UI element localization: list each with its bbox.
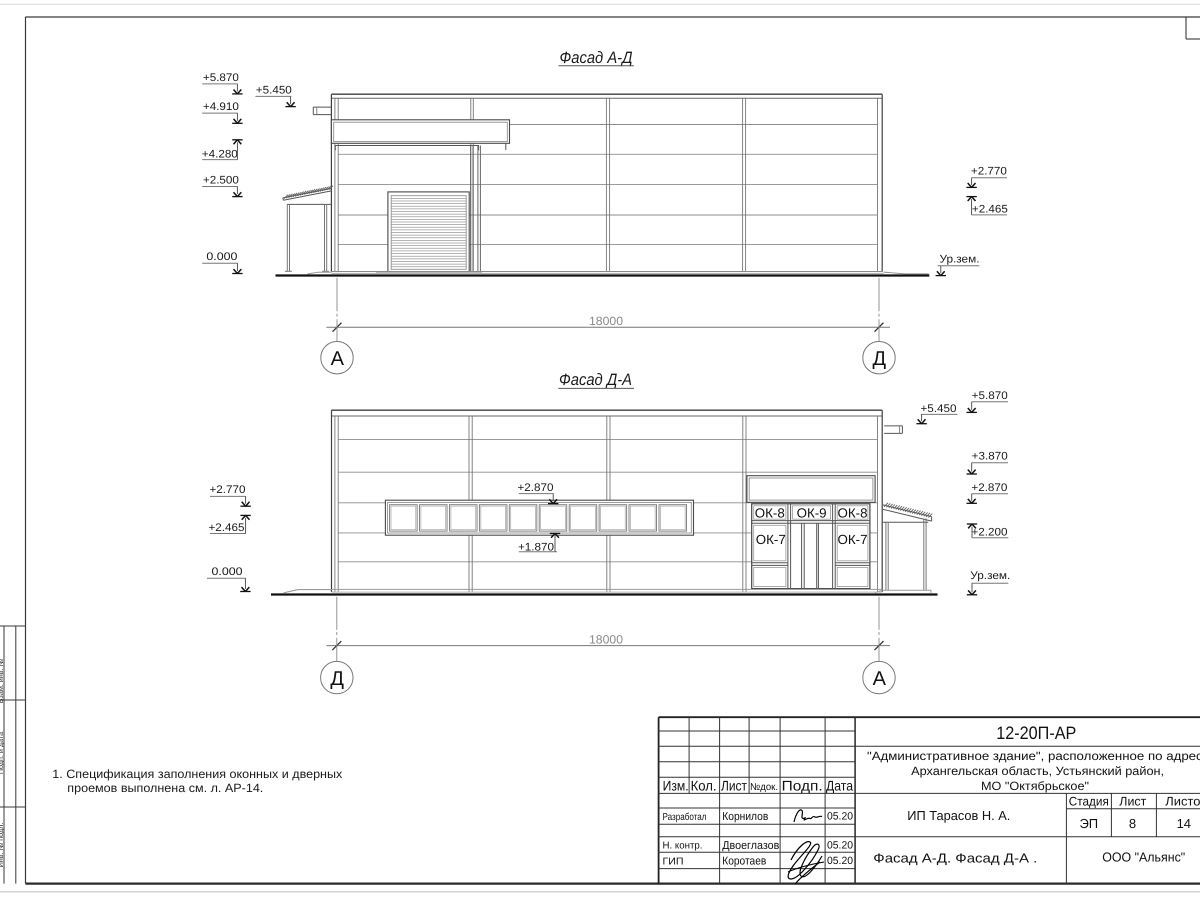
svg-text:Фасад А-Д: Фасад А-Д: [560, 49, 633, 67]
svg-text:№док.: №док.: [750, 782, 778, 793]
svg-text:Фасад А-Д. Фасад Д-А .: Фасад А-Д. Фасад Д-А .: [873, 851, 1037, 866]
svg-text:А: А: [873, 668, 887, 690]
svg-text:ОК-8: ОК-8: [755, 506, 785, 521]
svg-text:Двоеглазов: Двоеглазов: [722, 840, 779, 852]
svg-text:+4.280: +4.280: [202, 148, 238, 160]
svg-text:"Административное здание", рас: "Административное здание", расположенное…: [867, 749, 1200, 763]
svg-text:Д: Д: [330, 668, 344, 690]
svg-text:05.20: 05.20: [827, 811, 853, 823]
svg-text:+2.770: +2.770: [971, 166, 1007, 178]
svg-text:МО "Октябрьское": МО "Октябрьское": [981, 779, 1089, 793]
svg-text:+5.870: +5.870: [203, 72, 239, 84]
svg-text:+2.465: +2.465: [972, 204, 1008, 216]
svg-text:+4.910: +4.910: [203, 101, 239, 113]
svg-text:ЭП: ЭП: [1079, 816, 1098, 831]
svg-text:Лист: Лист: [721, 778, 748, 794]
svg-text:+2.200: +2.200: [972, 527, 1008, 539]
svg-text:Инв. № подл.: Инв. № подл.: [0, 823, 5, 868]
svg-text:Подп. и дата: Подп. и дата: [0, 732, 5, 774]
svg-text:Ур.зем.: Ур.зем.: [940, 254, 980, 266]
svg-text:Изм.: Изм.: [663, 778, 689, 794]
svg-text:+2.870: +2.870: [971, 482, 1007, 494]
svg-text:Лист: Лист: [1119, 794, 1146, 808]
svg-text:+2.770: +2.770: [210, 484, 246, 496]
svg-text:Кол.: Кол.: [691, 778, 717, 794]
svg-text:+5.870: +5.870: [972, 390, 1008, 402]
svg-text:05.20: 05.20: [827, 839, 853, 851]
svg-text:Стадия: Стадия: [1069, 794, 1109, 808]
svg-text:+3.870: +3.870: [972, 450, 1008, 462]
svg-text:ОК-9: ОК-9: [797, 506, 827, 521]
svg-text:А: А: [331, 348, 345, 370]
svg-text:Подп.: Подп.: [782, 778, 823, 794]
svg-text:0.000: 0.000: [212, 566, 243, 578]
svg-text:0.000: 0.000: [206, 251, 237, 263]
svg-text:Фасад Д-А: Фасад Д-А: [559, 371, 632, 389]
svg-text:18000: 18000: [589, 314, 623, 328]
svg-text:Ур.зем.: Ур.зем.: [970, 570, 1010, 582]
svg-text:Коротаев: Коротаев: [722, 856, 766, 868]
svg-text:+5.450: +5.450: [256, 84, 292, 96]
svg-text:12-20П-АР: 12-20П-АР: [996, 723, 1076, 743]
svg-text:8: 8: [1129, 816, 1136, 831]
svg-text:ОК-7: ОК-7: [756, 532, 786, 547]
svg-text:18000: 18000: [589, 632, 623, 646]
svg-text:ООО "Альянс": ООО "Альянс": [1102, 850, 1185, 865]
svg-text:+5.450: +5.450: [921, 403, 957, 415]
svg-text:05.20: 05.20: [827, 855, 853, 867]
svg-text:Архангельская область, Устьянс: Архангельская область, Устьянский район,: [911, 764, 1164, 778]
svg-text:Н. контр.: Н. контр.: [663, 841, 703, 852]
svg-text:Д: Д: [873, 348, 887, 370]
svg-text:Взам. инв. №: Взам. инв. №: [0, 658, 5, 703]
svg-text:ОК-7: ОК-7: [838, 532, 868, 547]
svg-text:+2.500: +2.500: [203, 174, 239, 186]
svg-text:ОК-8: ОК-8: [838, 506, 868, 521]
svg-text:Дата: Дата: [826, 778, 853, 794]
svg-text:проемов выполнена см. л. АР-14: проемов выполнена см. л. АР-14.: [67, 781, 263, 795]
svg-text:+2.465: +2.465: [209, 522, 245, 534]
svg-text:Листов: Листов: [1165, 794, 1200, 808]
svg-text:Корнилов: Корнилов: [722, 811, 768, 823]
svg-text:+2.870: +2.870: [518, 482, 554, 494]
svg-text:14: 14: [1177, 816, 1191, 831]
svg-text:Разработал: Разработал: [663, 812, 707, 823]
svg-text:ГИП: ГИП: [663, 856, 684, 867]
svg-text:1. Спецификация заполнения око: 1. Спецификация заполнения оконных и две…: [52, 767, 342, 781]
svg-text:ИП Тарасов Н. А.: ИП Тарасов Н. А.: [907, 808, 1010, 823]
